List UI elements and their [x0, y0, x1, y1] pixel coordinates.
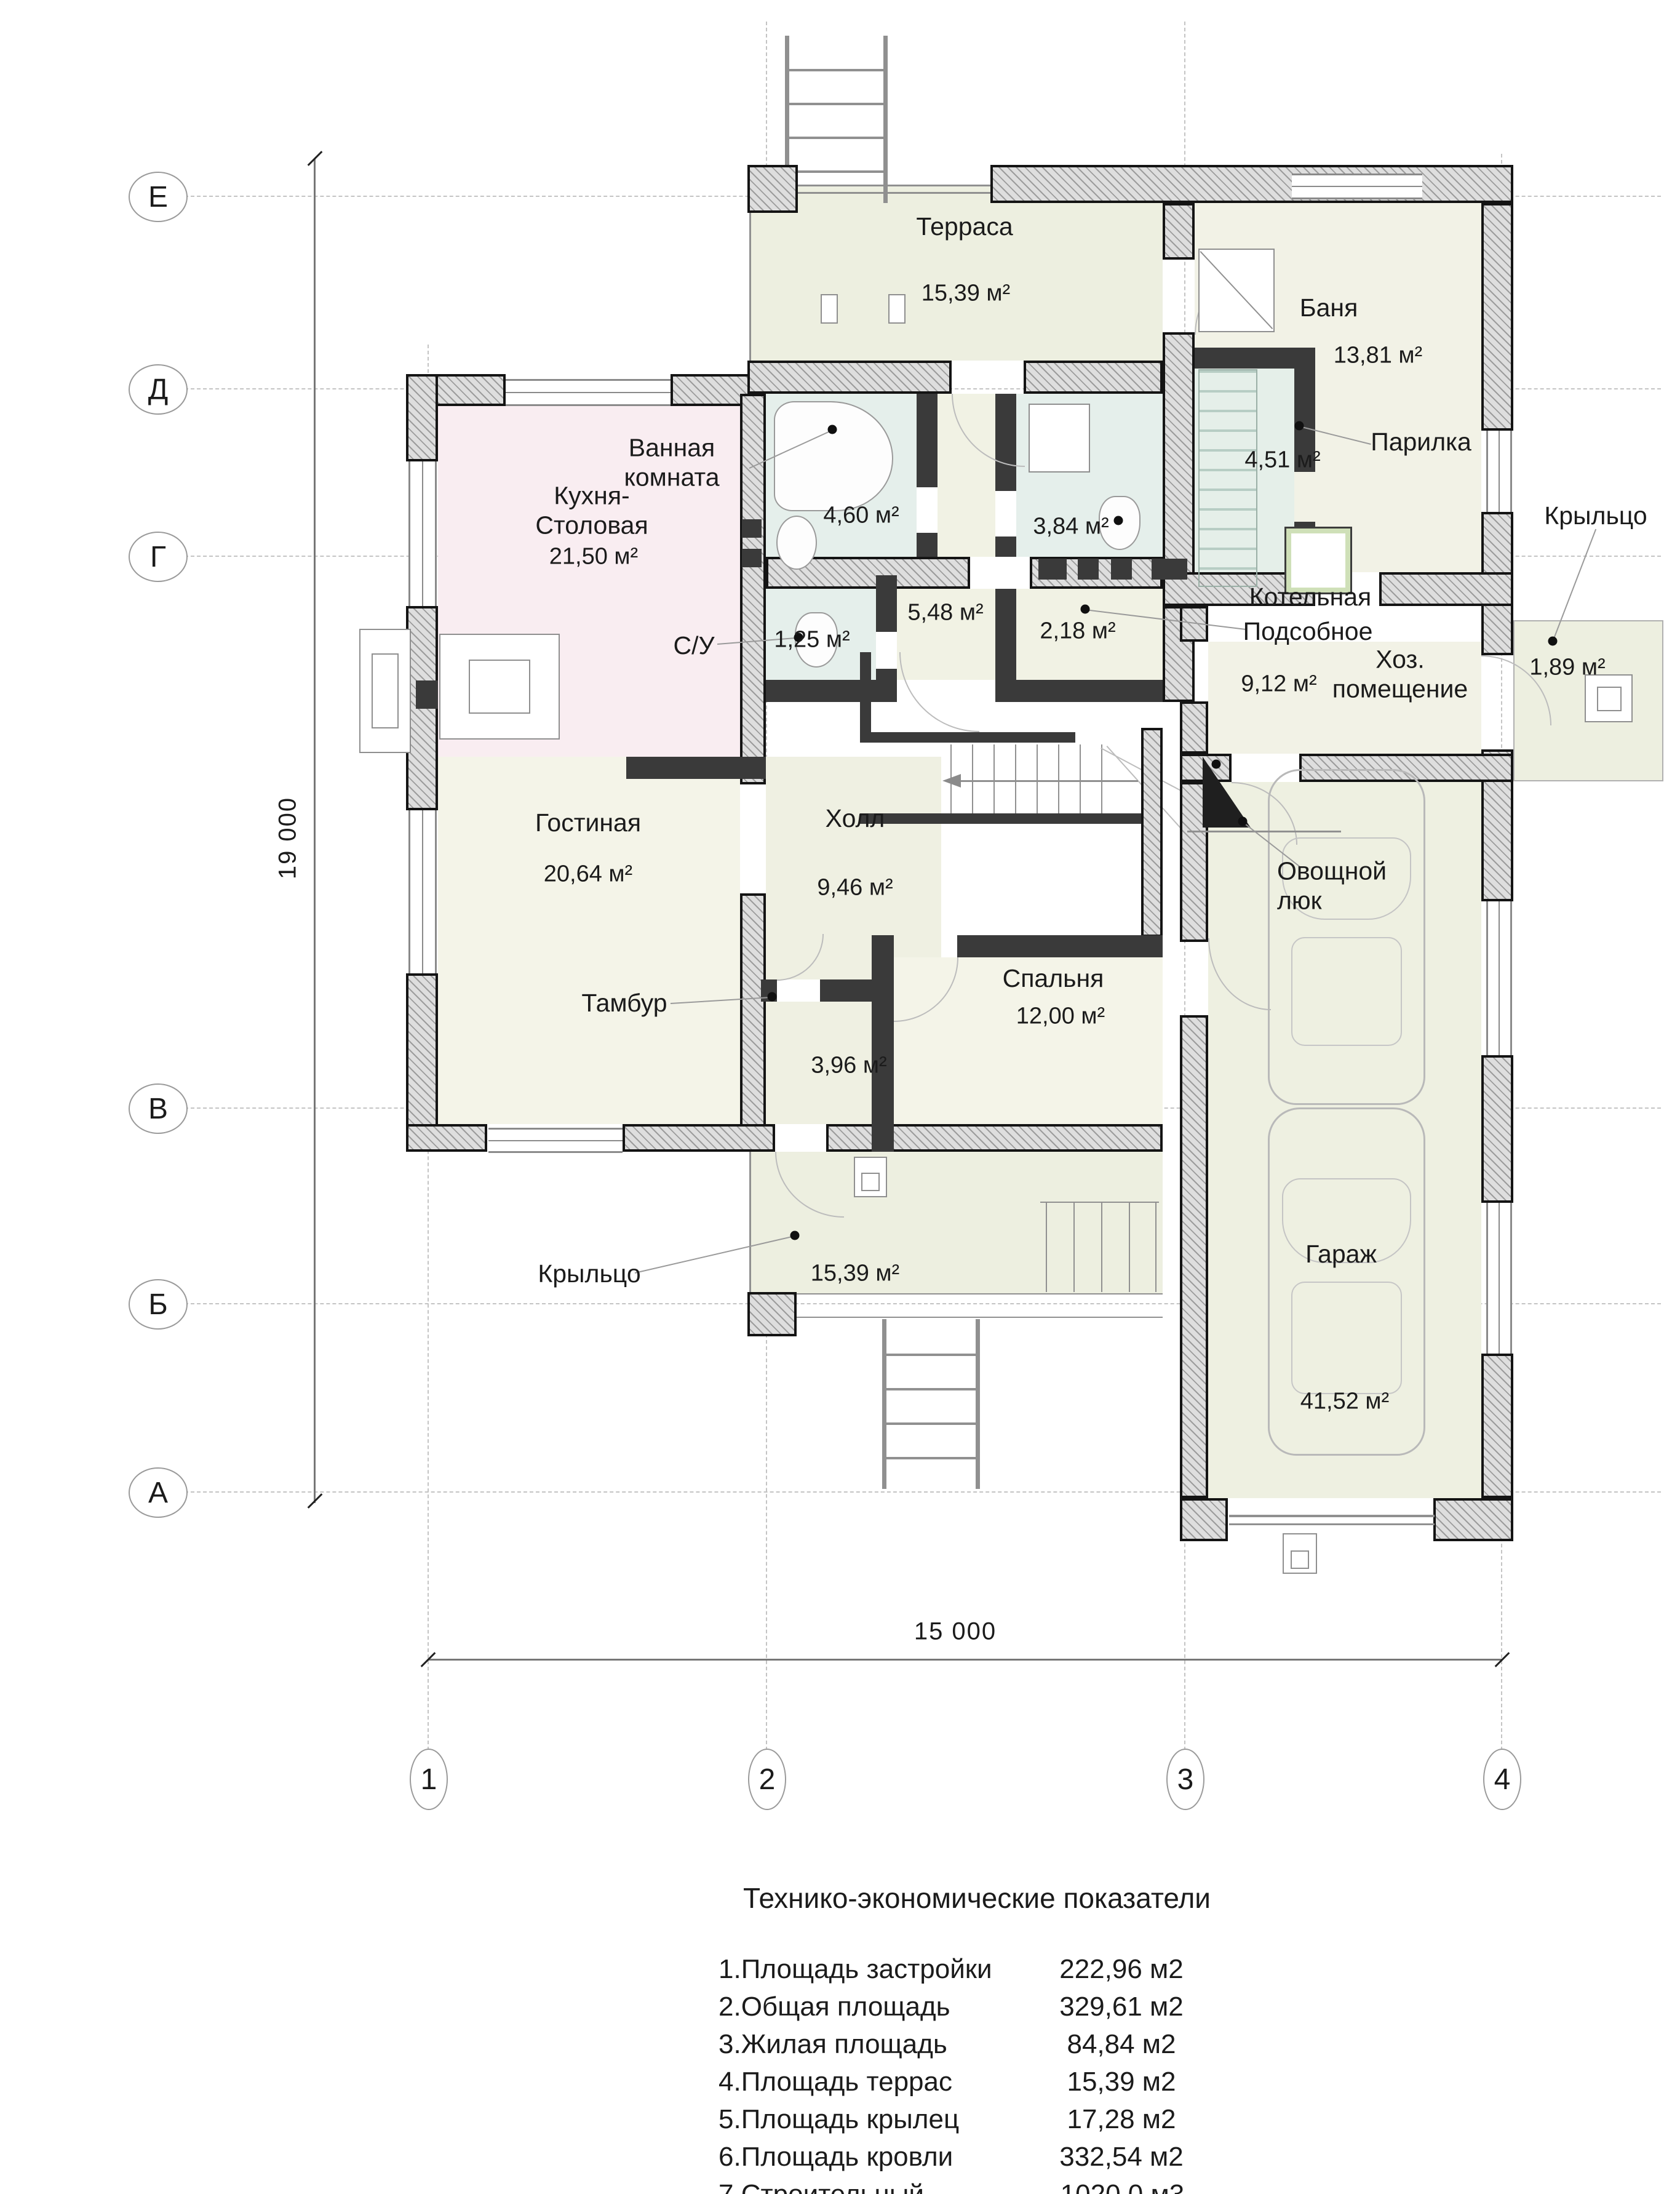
fireplace-inner — [469, 660, 530, 714]
porch-ladder-rung — [882, 1354, 980, 1356]
sink — [776, 516, 817, 570]
dim-line-vertical — [314, 159, 316, 1503]
summary-row: 2.Общая площадь 329,61 м2 — [719, 1988, 1235, 2025]
lobby-area: 2,18 м² — [1040, 618, 1115, 645]
window-garage-east-1 — [1486, 901, 1512, 1055]
wall-east-1 — [1481, 203, 1513, 431]
porch-step-top-line — [1040, 1202, 1159, 1203]
summary-row-label: 5.Площадь крылец — [719, 2100, 959, 2138]
boiler-label-3: Хоз. помещение — [1332, 645, 1468, 704]
porch-main-area: 15,39 м² — [811, 1260, 899, 1288]
porch-step-line — [1073, 1203, 1075, 1292]
wall-east-5 — [1481, 1354, 1513, 1498]
summary-row-value: 15,39 м2 — [1008, 2063, 1235, 2100]
car-top — [1268, 769, 1425, 1105]
axis-col-3: 3 — [1166, 1749, 1204, 1810]
fireplace-flue — [416, 680, 438, 709]
dim-line-horizontal — [428, 1659, 1502, 1661]
terrace-ladder-rung — [785, 103, 888, 105]
summary-row-label: 2.Общая площадь — [719, 1988, 950, 2025]
switch-block — [1111, 559, 1132, 580]
porch-step-line — [1155, 1203, 1156, 1292]
partition-bath1-east-b — [917, 533, 938, 557]
summary-row: 1.Площадь застройки 222,96 м2 — [719, 1950, 1235, 1988]
porch-step-line — [1101, 1203, 1102, 1292]
axis-col-2: 2 — [748, 1749, 786, 1810]
porch-right-mat-inner — [1597, 687, 1622, 711]
leader-dot — [1212, 760, 1221, 769]
door-arc-stairs — [899, 652, 979, 732]
summary-row-value: 17,28 м2 — [1008, 2100, 1235, 2138]
partition-bath2-west-b — [995, 537, 1016, 557]
terrace-post — [888, 294, 906, 324]
terrace-label: Терраса — [916, 212, 1013, 241]
leader-dot — [768, 992, 777, 1002]
wall-garage-west-2 — [1180, 1015, 1208, 1498]
boiler-area: 9,12 м² — [1241, 671, 1316, 698]
wall-garage-south-left — [1180, 1498, 1228, 1541]
porch-ladder-rail — [882, 1319, 886, 1489]
summary-row-value: 1020,0 м3 — [1009, 2176, 1235, 2194]
garage-drain-inner — [1291, 1550, 1309, 1569]
partition-tambour-top-b — [820, 979, 880, 1002]
corridor-area: 5,48 м² — [907, 599, 983, 627]
bania-area: 13,81 м² — [1334, 342, 1422, 370]
terrace-area: 15,39 м² — [922, 280, 1010, 308]
window-living-south — [488, 1128, 623, 1153]
axis-row-D: Д — [129, 364, 188, 415]
tambour-label: Тамбур — [581, 988, 667, 1018]
wc-area: 1,25 м² — [774, 626, 850, 654]
summary-title: Технико-экономические показатели — [719, 1881, 1235, 1915]
garage-label: Гараж — [1305, 1239, 1377, 1269]
summary-row: 7.Строительный объём 1020,0 м3 — [719, 2176, 1235, 2194]
summary-row-value: 329,61 м2 — [1008, 1988, 1235, 2025]
terrace-ladder-rung — [785, 170, 888, 173]
bathroom-area: 4,60 м² — [823, 502, 899, 530]
porch-right-area: 1,89 м² — [1529, 654, 1605, 682]
stair-tread — [1101, 744, 1102, 813]
wall-west-1 — [406, 374, 438, 461]
veg-hatch-label: Овощной люк — [1277, 856, 1387, 916]
tambour-area: 3,96 м² — [811, 1052, 886, 1080]
partition-wc-south — [766, 680, 897, 702]
floor-plan-sheet: Терраса 15,39 м² Баня 13,81 м² Парилка 4… — [0, 0, 1680, 2194]
wall-porch-sw-post — [747, 1292, 797, 1336]
summary-row-label: 3.Жилая площадь — [719, 2025, 947, 2063]
partition-bedroom-top — [957, 935, 1163, 957]
partition-stair-top — [860, 732, 1075, 743]
terrace-ladder-rung — [785, 137, 888, 139]
veg-hatch-line — [1187, 831, 1341, 832]
window-bania-north — [1292, 174, 1422, 199]
wall-terrace-south-right — [1024, 361, 1163, 394]
terrace-railing — [798, 185, 990, 186]
porch-main-label: Крыльцо — [538, 1259, 640, 1288]
window-kitchen-west — [408, 461, 437, 606]
wall-south-1 — [406, 1124, 487, 1152]
summary-row: 5.Площадь крылец 17,28 м2 — [719, 2100, 1235, 2138]
switch-block — [742, 549, 762, 567]
terrace-ladder-rail — [883, 36, 888, 203]
terrace-railing2 — [798, 192, 990, 194]
stair-tread — [1037, 744, 1038, 813]
wall-garage-south-right — [1433, 1498, 1513, 1541]
garage-area: 41,52 м² — [1300, 1388, 1389, 1416]
leader-dot — [1295, 421, 1304, 431]
terrace-ladder-rung — [785, 69, 888, 71]
leader-dot — [790, 1231, 800, 1240]
partition-stair-stub — [860, 652, 871, 733]
porch-ladder-rung — [882, 1457, 980, 1459]
bania-label: Баня — [1300, 293, 1358, 322]
stair-tread — [972, 744, 973, 813]
wall-stair-east — [1141, 728, 1163, 937]
porch-ladder-rung — [882, 1422, 980, 1425]
wall-south-2 — [623, 1124, 775, 1152]
summary-row-value: 332,54 м2 — [1008, 2138, 1235, 2176]
partition-stair-bottom — [860, 813, 1141, 824]
porch-step-line — [1129, 1203, 1130, 1292]
living-label: Гостиная — [535, 808, 641, 837]
boiler-label-1: Котельная — [1249, 582, 1371, 612]
axis-row-A: А — [129, 1467, 188, 1518]
porch-step-line — [1046, 1203, 1047, 1292]
partition-wc-east-a — [876, 575, 897, 632]
wall-boiler-west-2 — [1180, 701, 1208, 754]
garage-gate-line2 — [1229, 1523, 1435, 1525]
porch-edge-line2 — [797, 1317, 1163, 1318]
axis-row-B: Б — [129, 1279, 188, 1330]
leader-dot — [828, 425, 837, 434]
hall-label: Холл — [826, 804, 885, 833]
kitchen-label: Кухня- Столовая — [535, 481, 648, 541]
partition-corridor-lobby — [995, 589, 1016, 680]
window-bania-east — [1486, 431, 1512, 512]
wall-terrace-nw-post — [747, 165, 798, 213]
switch-block — [742, 519, 762, 538]
leader-dot — [1238, 817, 1248, 826]
leader-dot — [1081, 605, 1090, 614]
partition-bedroom-top-stub — [872, 935, 894, 957]
axis-row-V: В — [129, 1083, 188, 1134]
summary-row-value: 84,84 м2 — [1008, 2025, 1235, 2063]
axis-row-E: Е — [129, 172, 188, 222]
hall-area: 9,46 м² — [817, 874, 893, 902]
porch-left-edge — [749, 1152, 751, 1293]
washing-machine — [1029, 404, 1090, 473]
dim-text-horizontal: 15 000 — [914, 1618, 997, 1646]
parilka-label: Парилка — [1371, 427, 1471, 457]
sauna-bench — [1198, 369, 1257, 587]
leader-dot — [1114, 516, 1123, 525]
summary-row: 3.Жилая площадь 84,84 м2 — [719, 2025, 1235, 2063]
porch-ladder-rail — [976, 1319, 980, 1489]
switch-block — [1152, 559, 1187, 580]
stair-tread — [1080, 744, 1081, 813]
stair-tread — [993, 744, 995, 813]
summary-row-label: 1.Площадь застройки — [719, 1950, 992, 1988]
summary-row: 6.Площадь кровли 332,54 м2 — [719, 2138, 1235, 2176]
summary-table: Технико-экономические показатели 1.Площа… — [719, 1881, 1235, 2194]
switch-block — [1038, 559, 1067, 580]
wall-terrace-south-left — [747, 361, 952, 394]
leader-dot — [1548, 637, 1558, 646]
porch-edge-line — [797, 1293, 1163, 1294]
partition-lobby-south — [995, 680, 1163, 702]
wall-central-west-upper — [740, 394, 766, 784]
partition-bath1-east-a — [917, 394, 938, 487]
wall-top-right — [990, 165, 1513, 203]
summary-row: 4.Площадь террас 15,39 м2 — [719, 2063, 1235, 2100]
summary-row-label: 4.Площадь террас — [719, 2063, 952, 2100]
porch-right-label: Крыльцо — [1544, 501, 1647, 530]
stair-arrow-line — [960, 780, 1138, 782]
window-garage-east-2 — [1486, 1203, 1512, 1354]
kitchen-area: 21,50 м² — [549, 543, 638, 571]
bedroom-label: Спальня — [1003, 963, 1104, 993]
wall-bania-west-upper — [1163, 203, 1195, 260]
wall-bania-south-right — [1379, 572, 1513, 606]
partition-kitchen-living-stub — [626, 757, 766, 779]
living-area: 20,64 м² — [544, 861, 632, 888]
window-living-west — [408, 810, 437, 973]
axis-col-4: 4 — [1483, 1749, 1521, 1810]
garage-gate-line — [1229, 1515, 1435, 1517]
parilka-area: 4,51 м² — [1244, 447, 1320, 474]
partition-parilka-top — [1195, 348, 1315, 369]
dim-text-vertical: 19 000 — [274, 797, 302, 879]
summary-row-label: 7.Строительный объём — [719, 2176, 1009, 2194]
terrace-post — [821, 294, 838, 324]
bedroom-area: 12,00 м² — [1016, 1003, 1105, 1031]
porch-ladder-rung — [882, 1388, 980, 1390]
switch-block — [1078, 559, 1099, 580]
terrace-left-edge — [749, 203, 751, 361]
stair-tread — [1058, 744, 1059, 813]
stair-tread — [1015, 744, 1016, 813]
summary-row-value: 222,96 м2 — [1008, 1950, 1235, 1988]
entrance-mat-inner — [861, 1173, 880, 1191]
wc-label: С/У — [673, 631, 714, 660]
boiler-label-2: Подсобное — [1243, 616, 1373, 646]
window-kitchen-north — [506, 379, 671, 406]
bay-window-inner — [372, 653, 399, 728]
axis-col-1: 1 — [410, 1749, 448, 1810]
stair-arrow-head — [942, 774, 961, 788]
summary-row-label: 6.Площадь кровли — [719, 2138, 953, 2176]
wall-east-4 — [1481, 1055, 1513, 1203]
bathroom2-area: 3,84 м² — [1033, 513, 1109, 541]
axis-row-G: Г — [129, 532, 188, 582]
wall-central-west-lower — [740, 893, 766, 1152]
